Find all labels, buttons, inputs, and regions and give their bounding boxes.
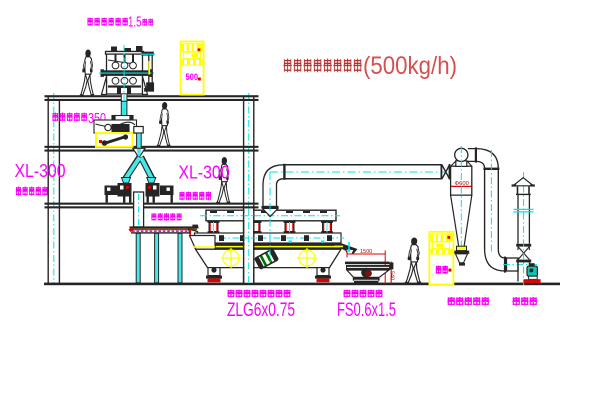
svg-text:XL-300: XL-300 bbox=[179, 162, 230, 183]
svg-text:540: 540 bbox=[389, 271, 395, 280]
svg-text:(500kg/h): (500kg/h) bbox=[363, 52, 457, 80]
svg-text:FS0.6x1.5: FS0.6x1.5 bbox=[337, 300, 396, 321]
svg-text:XL-300: XL-300 bbox=[15, 160, 66, 181]
svg-text:Φ600: Φ600 bbox=[455, 181, 469, 187]
svg-text:1.5: 1.5 bbox=[128, 14, 142, 31]
svg-text:ZLG6x0.75: ZLG6x0.75 bbox=[227, 300, 295, 321]
svg-text:1500: 1500 bbox=[360, 249, 372, 255]
svg-text:500: 500 bbox=[186, 72, 199, 83]
